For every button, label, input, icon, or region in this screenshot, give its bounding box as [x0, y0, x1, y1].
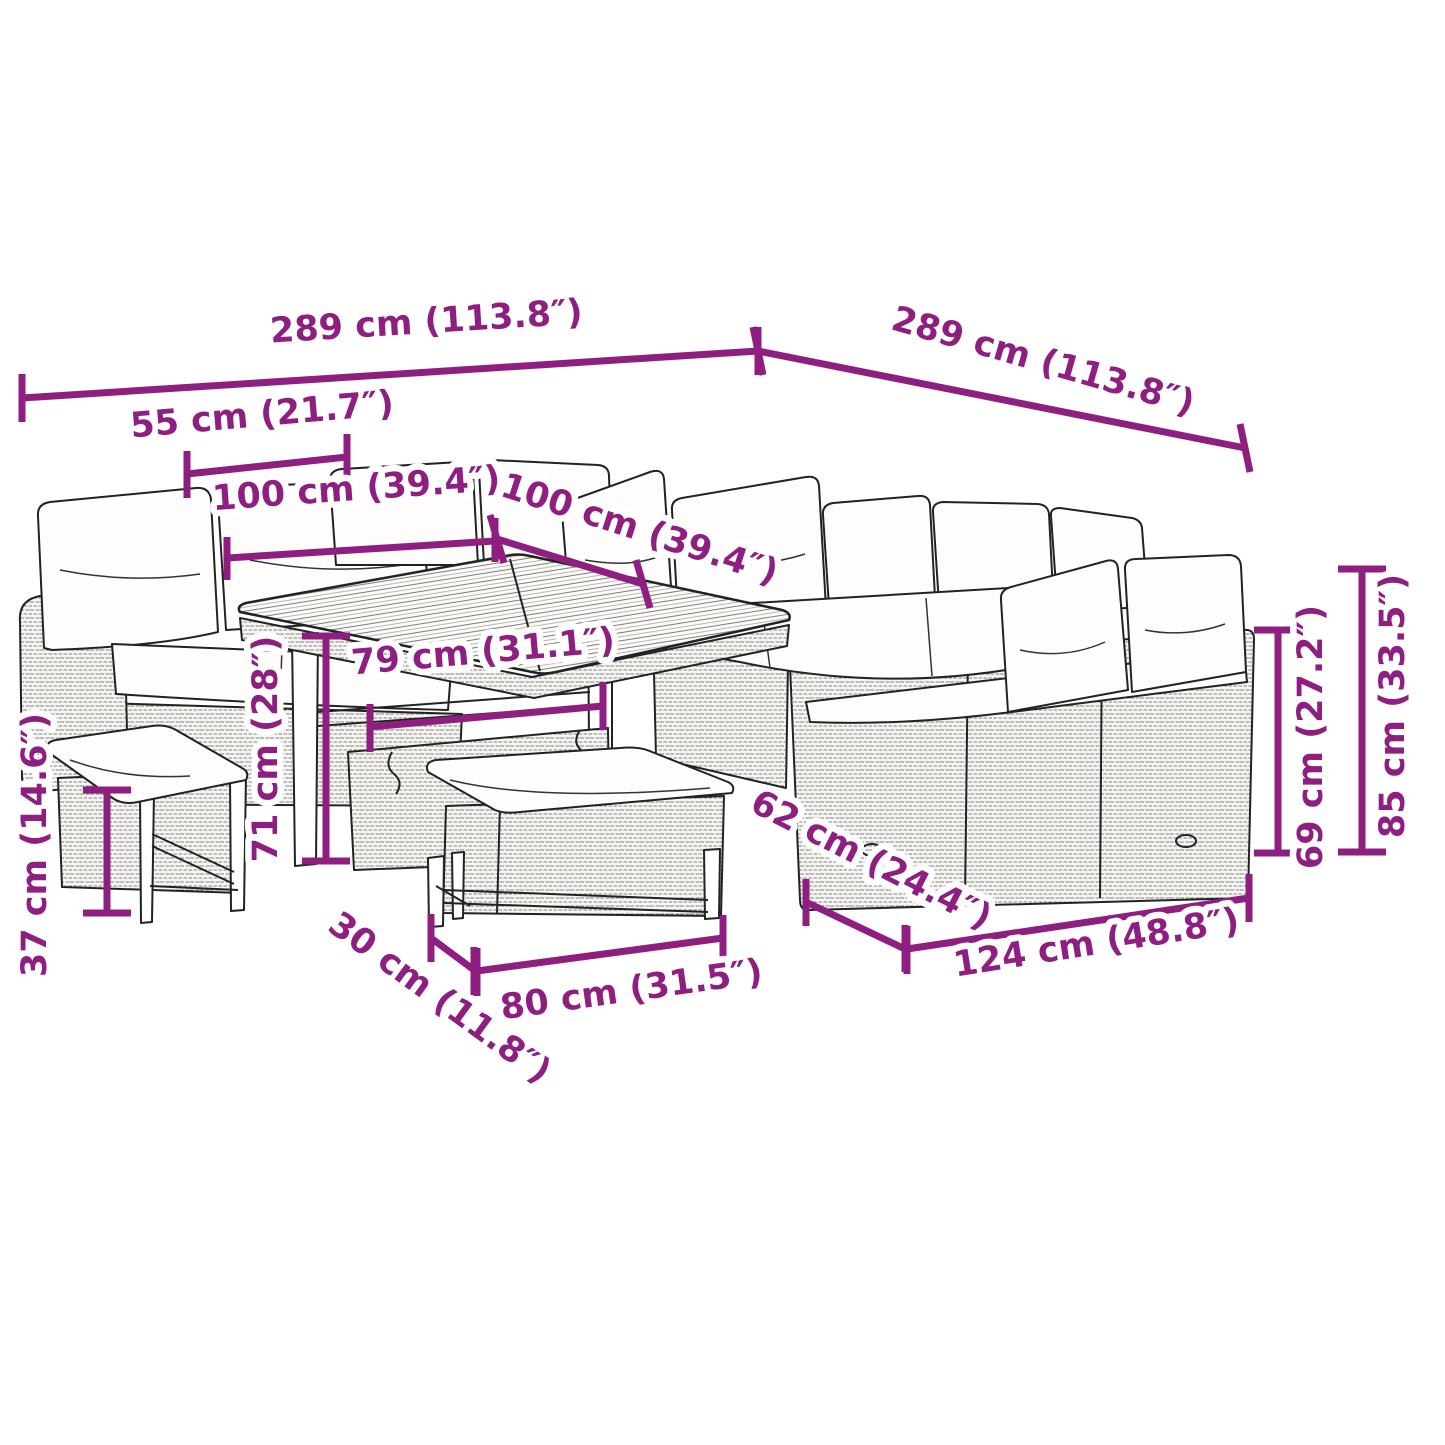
dim-overall-width-left-label: 289 cm (113.8″) — [269, 293, 584, 352]
diagram-canvas: 289 cm (113.8″) 289 cm (113.8″) 55 cm (2… — [0, 0, 1445, 1445]
dim-seat-back-height-label: 69 cm (27.2″) — [1291, 605, 1331, 869]
dim-bench-small-height-label: 37 cm (14.6″) — [15, 713, 55, 977]
dim-seat-back-height: 69 cm (27.2″) — [1254, 605, 1331, 869]
dim-overall-width-right: 289 cm (113.8″) — [753, 299, 1250, 472]
bench-long — [427, 748, 733, 928]
dim-table-height-label: 71 cm (28″) — [246, 636, 286, 863]
dim-bench-small-width-label: 55 cm (21.7″) — [129, 384, 396, 447]
furniture-dimension-diagram: 289 cm (113.8″) 289 cm (113.8″) 55 cm (2… — [0, 0, 1445, 1445]
bench-small — [47, 726, 247, 924]
dim-bench-long-width: 80 cm (31.5″) — [477, 915, 765, 1028]
dim-sofa-height: 85 cm (33.5″) — [1338, 569, 1413, 852]
dim-sofa-height-label: 85 cm (33.5″) — [1373, 574, 1413, 838]
dim-sofa-width-label: 124 cm (48.8″) — [951, 901, 1242, 986]
